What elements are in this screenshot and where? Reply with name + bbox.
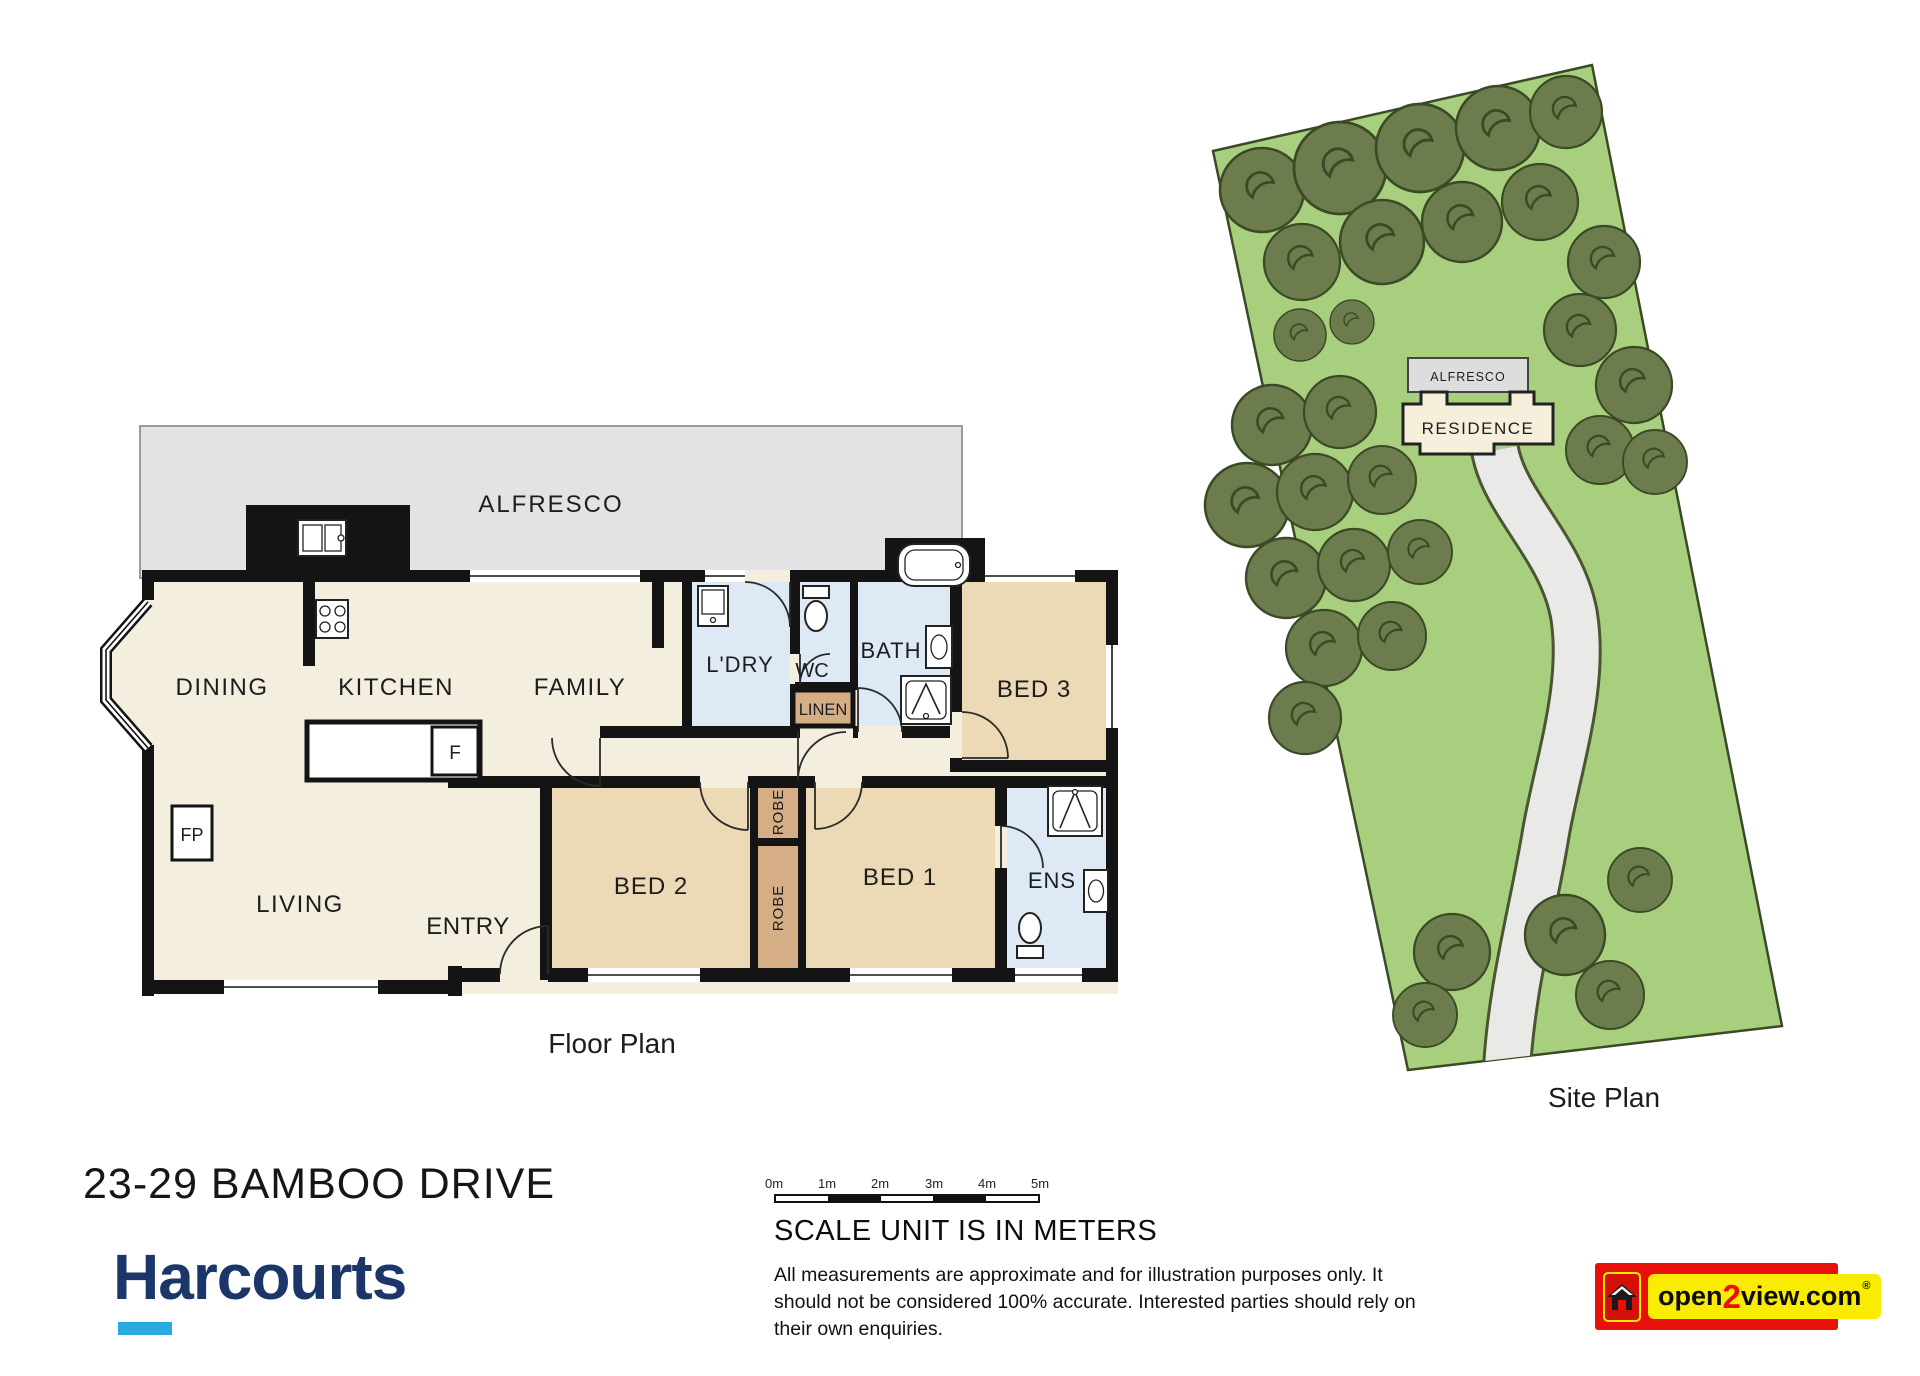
family-label: FAMILY [534, 674, 627, 701]
bath-vanity [926, 626, 952, 668]
kitchen-label: KITCHEN [338, 674, 454, 701]
tick-3m: 3m [925, 1176, 943, 1191]
tick-0m: 0m [765, 1176, 783, 1191]
bath-shower [901, 676, 951, 724]
wc-toilet [803, 586, 829, 631]
site-plan-caption: Site Plan [1548, 1082, 1660, 1113]
tick-5m: 5m [1031, 1176, 1049, 1191]
scale-ticks: 0m 1m 2m 3m 4m 5m [774, 1176, 1040, 1192]
site-residence-label: RESIDENCE [1422, 419, 1535, 438]
registered-mark: ® [1862, 1280, 1870, 1292]
disclaimer-line-2: should not be considered 100% accurate. … [774, 1289, 1434, 1316]
robe-label-lower: ROBE [770, 885, 787, 932]
kitchen-sink [298, 520, 346, 556]
living-label: LIVING [256, 891, 344, 918]
wordmark-2: 2 [1723, 1283, 1741, 1310]
tick-2m: 2m [871, 1176, 889, 1191]
scale-heading: SCALE UNIT IS IN METERS [774, 1215, 1434, 1248]
scale-bar [774, 1194, 1040, 1203]
ens-shower [1048, 786, 1102, 836]
floor-plan: ALFRESCO DINING KITCHEN FAMILY L'DRY WC … [106, 426, 1118, 1059]
bed2-label: BED 2 [614, 873, 688, 900]
dining-label: DINING [176, 674, 269, 701]
disclaimer-line-3: their own enquiries. [774, 1316, 1434, 1343]
tick-4m: 4m [978, 1176, 996, 1191]
scale-section: 0m 1m 2m 3m 4m 5m SCALE UNIT IS IN METER… [774, 1176, 1434, 1343]
floor-plan-caption: Floor Plan [548, 1028, 676, 1059]
wordmark-view: view.com [1741, 1281, 1862, 1312]
open2view-logo: open2view.com® [1595, 1263, 1838, 1330]
site-alfresco-label: ALFRESCO [1430, 370, 1505, 384]
harcourts-logo: Harcourts [113, 1240, 406, 1314]
bed1-label: BED 1 [863, 864, 937, 891]
open2view-wordmark: open2view.com® [1648, 1274, 1881, 1319]
wc-label: WC [795, 660, 828, 682]
fridge-label: F [449, 743, 461, 764]
property-address: 23-29 BAMBOO DRIVE [83, 1160, 555, 1209]
fireplace-label: FP [180, 825, 203, 845]
ens-toilet [1017, 913, 1043, 958]
bath-label: BATH [860, 638, 921, 663]
tick-1m: 1m [818, 1176, 836, 1191]
disclaimer-line-1: All measurements are approximate and for… [774, 1262, 1434, 1289]
laundry-trough [698, 586, 728, 626]
stove-icon [316, 600, 348, 638]
laundry-label: L'DRY [706, 652, 774, 677]
bathtub [898, 544, 970, 586]
ens-vanity [1084, 870, 1108, 912]
robe-label-upper: ROBE [770, 789, 787, 836]
entry-label: ENTRY [426, 913, 509, 940]
wordmark-open: open [1658, 1281, 1723, 1312]
linen-label: LINEN [799, 701, 848, 719]
disclaimer-text: All measurements are approximate and for… [774, 1262, 1434, 1343]
alfresco-label: ALFRESCO [478, 491, 623, 518]
site-plan: ALFRESCO RESIDENCE Site Plan [1205, 65, 1782, 1113]
ens-label: ENS [1028, 868, 1076, 893]
house-icon [1603, 1272, 1641, 1322]
bed3-label: BED 3 [997, 676, 1071, 703]
harcourts-underline [118, 1322, 172, 1335]
